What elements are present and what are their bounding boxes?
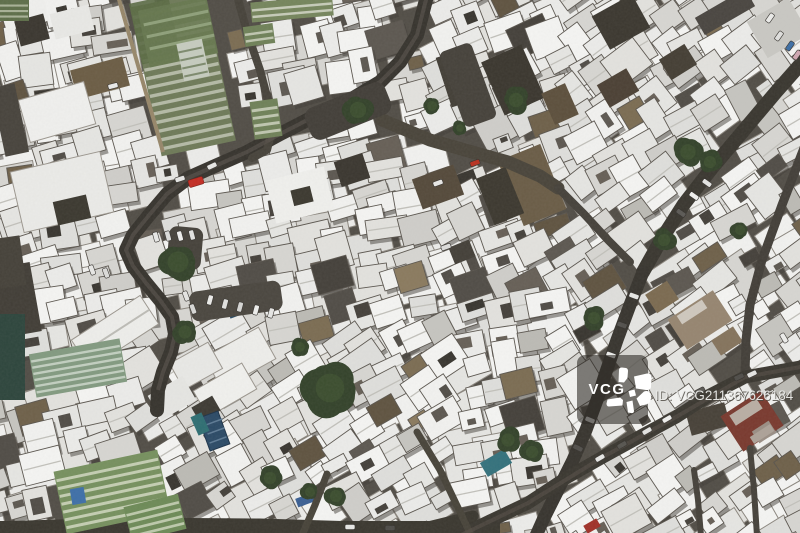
svg-text:VCG: VCG (588, 381, 625, 398)
svg-text:ID: VCG211367626184: ID: VCG211367626184 (655, 388, 794, 403)
